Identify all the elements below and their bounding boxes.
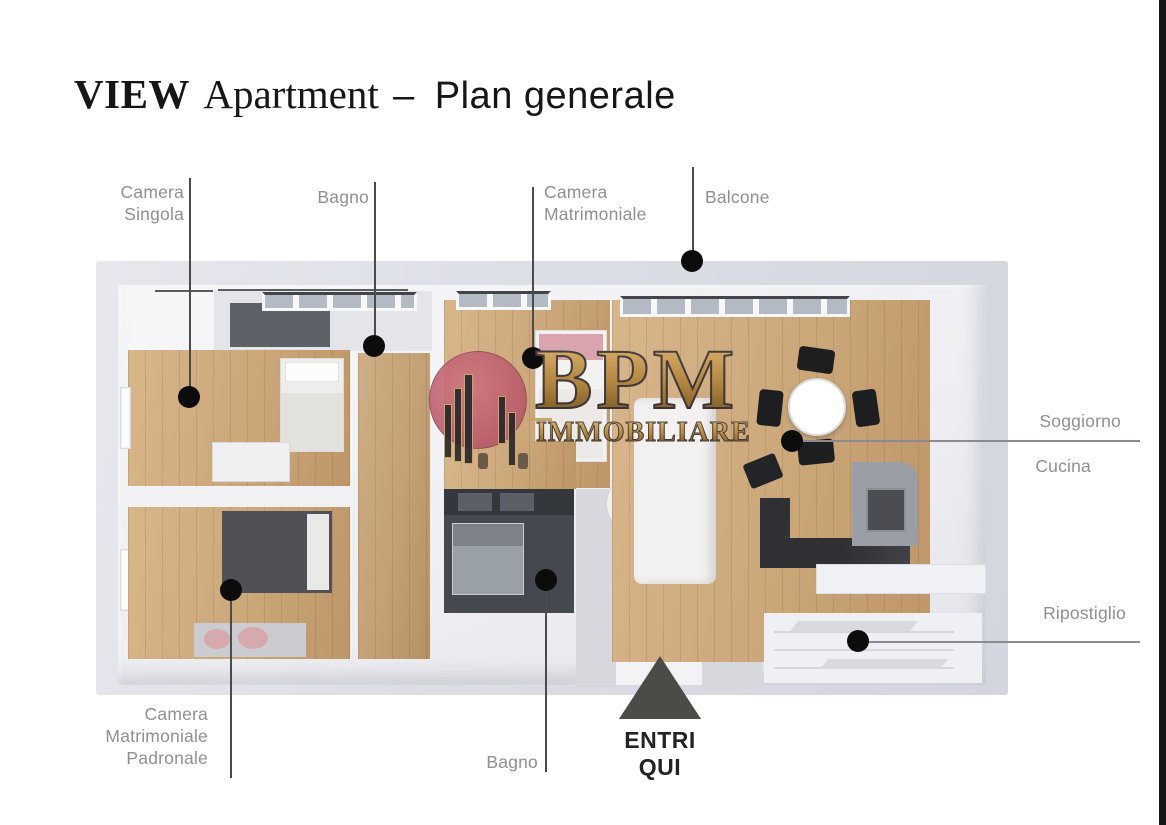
leader-line: [858, 641, 1140, 643]
storage-room-floor: [764, 613, 982, 683]
kitchen-counter-white: [816, 564, 986, 594]
marker-dot-bagno-bottom: [535, 569, 557, 591]
wall-edge-line: [155, 290, 213, 292]
label-soggiorno: Soggiorno: [1039, 410, 1121, 432]
label-camera-matrimoniale-padronale: Camera Matrimoniale Padronale: [105, 703, 208, 769]
entry-label: ENTRI QUI: [596, 727, 724, 781]
skyline-bar: [454, 388, 462, 462]
dining-chair: [852, 389, 881, 428]
bathroom-bottom-floor: [444, 489, 574, 613]
title-app: Apartment: [203, 71, 378, 117]
label-line: Singola: [121, 203, 184, 225]
label-line: Soggiorno: [1039, 410, 1121, 432]
leader-line: [692, 167, 694, 261]
skylight-window: [456, 291, 551, 310]
skylight-window: [262, 292, 417, 311]
label-line: Camera: [121, 181, 184, 203]
wall-top: [820, 659, 948, 669]
skyline-bar: [508, 412, 516, 466]
marker-dot-balcone: [681, 250, 703, 272]
title-subtitle: Plan generale: [435, 75, 676, 117]
label-line: Camera: [105, 703, 208, 725]
shower-edge: [453, 524, 523, 546]
marker-dot-soggiorno: [781, 430, 803, 452]
master-bed: [222, 511, 332, 593]
bench: [194, 623, 306, 657]
dining-chair: [797, 346, 836, 375]
desk-chair: [742, 453, 783, 490]
label-line: Balcone: [705, 186, 770, 208]
entry-arrow-icon: [619, 656, 701, 719]
logo-acronym: BPM: [535, 336, 738, 422]
logo-word: IMMOBILIARE: [536, 419, 751, 447]
label-line: Camera: [544, 181, 647, 203]
right-edge-bar: [1159, 0, 1166, 825]
floor-plan: [96, 261, 1008, 695]
label-line: Ripostiglio: [1043, 602, 1126, 624]
entry-line2: QUI: [596, 754, 724, 781]
dresser: [212, 442, 290, 482]
leader-line: [794, 440, 1140, 442]
leader-line: [545, 580, 547, 772]
entry-line1: ENTRI: [596, 727, 724, 754]
label-line: Matrimoniale: [544, 203, 647, 225]
page-title: VIEW Apartment – Plan generale: [74, 70, 676, 118]
marker-dot-camera-singola: [178, 386, 200, 408]
leader-line: [374, 182, 376, 346]
leader-line: [189, 178, 191, 397]
marker-dot-padronale: [220, 579, 242, 601]
label-ripostiglio: Ripostiglio: [1043, 602, 1126, 624]
label-camera-singola: Camera Singola: [121, 181, 184, 225]
oven: [866, 488, 906, 532]
label-camera-matrimoniale: Camera Matrimoniale: [544, 181, 647, 225]
label-bagno-bottom: Bagno: [486, 751, 538, 773]
corridor-floor: [358, 353, 430, 659]
leader-line: [532, 187, 534, 358]
balcony-window-row: [620, 296, 850, 317]
shower-box: [452, 523, 524, 595]
title-brand: VIEW: [74, 71, 190, 117]
label-line: Matrimoniale: [105, 725, 208, 747]
label-line: Bagno: [486, 751, 538, 773]
label-cucina: Cucina: [1035, 455, 1091, 477]
dining-chair: [756, 389, 784, 427]
kitchen-tall-unit: [852, 462, 918, 546]
marker-dot-bagno-top: [363, 335, 385, 357]
leader-line: [230, 590, 232, 778]
dining-table: [788, 378, 846, 436]
skyline-bar: [444, 404, 452, 458]
label-line: Cucina: [1035, 455, 1091, 477]
pillow: [285, 362, 339, 382]
marker-dot-ripostiglio: [847, 630, 869, 652]
skyline-bar: [464, 374, 473, 464]
slide: VIEW Apartment – Plan generale: [0, 0, 1166, 825]
single-bedroom-floor: [128, 350, 350, 486]
label-bagno-top: Bagno: [317, 186, 369, 208]
mirror: [458, 493, 492, 511]
window: [120, 387, 131, 449]
clothes: [204, 629, 230, 649]
clothes: [238, 627, 268, 649]
title-dash: –: [393, 75, 414, 117]
skyline-bar: [498, 396, 506, 444]
single-bed: [280, 358, 344, 452]
blanket: [281, 393, 343, 451]
label-balcone: Balcone: [705, 186, 770, 208]
mirror: [500, 493, 534, 511]
pillows: [307, 514, 329, 590]
label-line: Bagno: [317, 186, 369, 208]
label-line: Padronale: [105, 747, 208, 769]
